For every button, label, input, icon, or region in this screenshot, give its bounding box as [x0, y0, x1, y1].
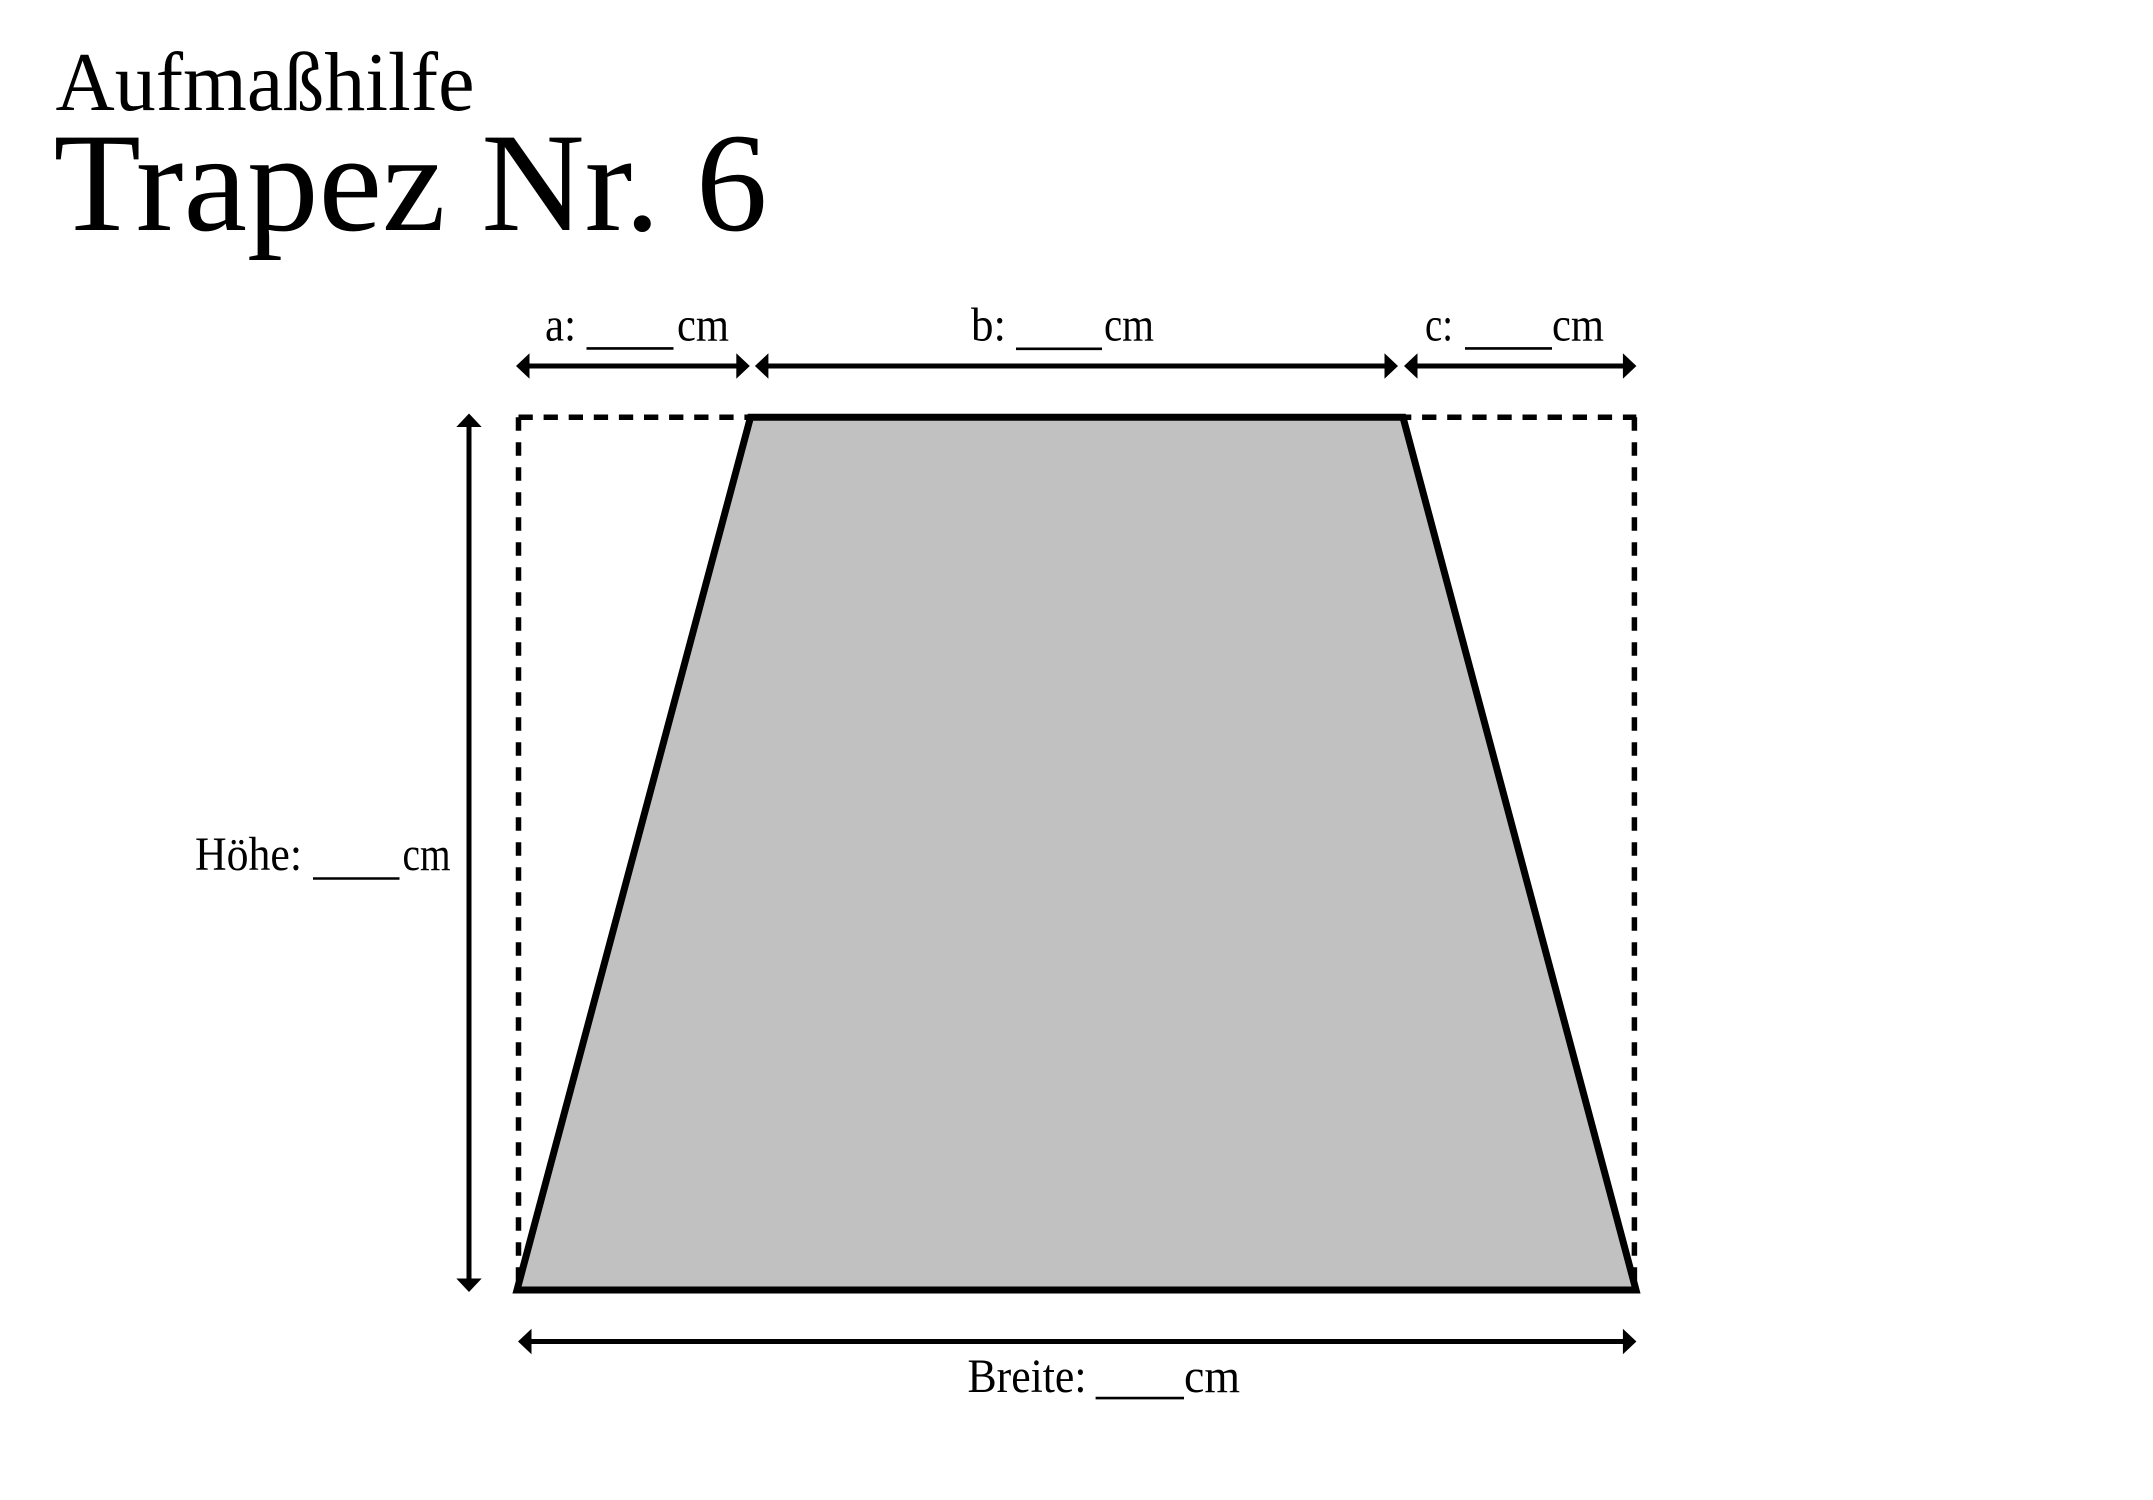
svg-text:Breite:: Breite: [968, 1350, 1087, 1403]
svg-text:cm: cm [1184, 1350, 1240, 1403]
svg-text:a:: a: [545, 299, 576, 352]
svg-text:cm: cm [1552, 299, 1604, 352]
svg-text:Höhe:: Höhe: [195, 828, 302, 881]
svg-text:cm: cm [403, 828, 451, 881]
svg-text:b:: b: [971, 299, 1006, 352]
svg-text:Trapez Nr. 6: Trapez Nr. 6 [54, 105, 768, 261]
svg-text:cm: cm [1104, 299, 1154, 352]
svg-text:cm: cm [677, 299, 729, 352]
svg-text:c:: c: [1425, 299, 1453, 352]
